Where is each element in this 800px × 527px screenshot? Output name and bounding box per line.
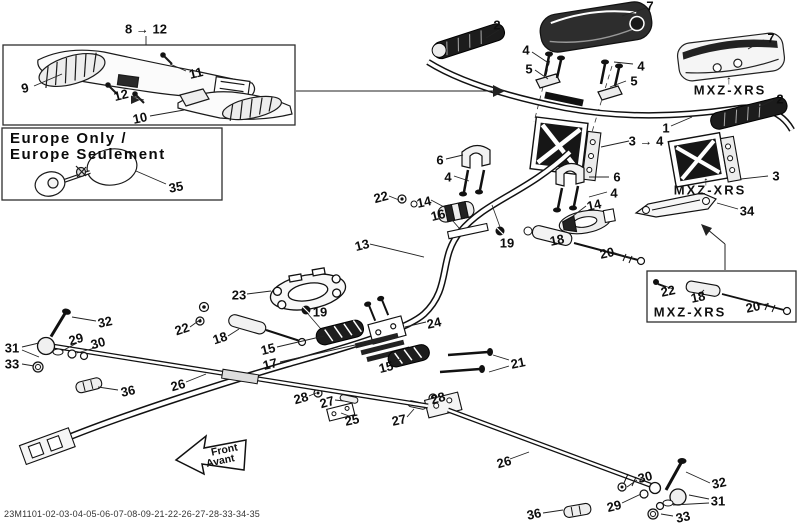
part-callout-10: 10 <box>132 110 149 126</box>
part-callout-34: 34 <box>740 205 754 218</box>
part-callout-22: 22 <box>660 283 677 299</box>
part-callout-6: 6 <box>613 171 620 184</box>
part-callout-34: 3 → 4 <box>629 135 664 148</box>
part-callout-26: 26 <box>495 454 512 470</box>
part-callout-12: 12 <box>112 87 129 103</box>
part-callout-812: 8 → 12 <box>125 23 167 36</box>
handlebar-drawing <box>428 0 792 213</box>
front-direction-arrow: Front Avant <box>176 436 246 474</box>
part-callout-29: 29 <box>605 498 622 514</box>
mxz-xrs-label-inset: MXZ-XRS <box>654 306 727 319</box>
part-callout-4: 4 <box>522 44 529 57</box>
part-callout-31: 31 <box>711 495 725 508</box>
exploded-diagram-art: Front Avant <box>0 0 800 527</box>
part-callout-5: 5 <box>525 63 532 76</box>
part-callout-18: 18 <box>549 232 566 248</box>
part-callout-20: 20 <box>745 299 762 315</box>
part-callout-14: 14 <box>586 197 603 213</box>
steering-column-drawing <box>19 152 725 519</box>
part-callout-28: 28 <box>429 390 446 406</box>
part-callout-14: 14 <box>416 194 433 210</box>
part-callout-33: 33 <box>675 509 692 525</box>
part-callout-6: 6 <box>436 154 443 167</box>
part-callout-15: 15 <box>377 359 394 375</box>
part-callout-17: 17 <box>261 356 278 372</box>
part-callout-23: 23 <box>232 289 246 302</box>
part-callout-36: 36 <box>526 506 543 522</box>
part-callout-25: 25 <box>344 412 361 428</box>
part-callout-32: 32 <box>711 475 728 491</box>
part-callout-19: 19 <box>313 306 327 319</box>
part-callout-20: 20 <box>599 245 616 261</box>
part-callout-27: 27 <box>318 394 335 410</box>
part-callout-30: 30 <box>636 469 653 485</box>
part-callout-4: 4 <box>444 171 451 184</box>
part-callout-24: 24 <box>426 315 443 331</box>
europe-only-title: Europe Only / Europe Seulement <box>10 131 166 163</box>
part-callout-2: 2 <box>776 93 783 106</box>
part-callout-32: 32 <box>97 314 114 330</box>
part-callout-26: 26 <box>169 377 186 393</box>
part-callout-35: 35 <box>168 179 185 194</box>
part-callout-16: 16 <box>429 207 446 223</box>
part-callout-27: 27 <box>391 412 408 428</box>
europe-only-line1: Europe Only / <box>10 131 166 147</box>
part-callout-31: 31 <box>5 342 19 355</box>
catalog-part-code: 23M1101-02-03-04-05-06-07-08-09-21-22-26… <box>4 510 260 519</box>
europe-only-line2: Europe Seulement <box>10 147 166 163</box>
part-callout-29: 29 <box>67 331 84 347</box>
part-callout-11: 11 <box>188 65 204 81</box>
part-callout-5: 5 <box>630 75 637 88</box>
part-callout-19: 19 <box>500 237 514 250</box>
part-callout-30: 30 <box>89 335 106 351</box>
part-callout-36: 36 <box>120 383 137 399</box>
mxz-xrs-label-pad: MXZ-XRS <box>694 84 767 97</box>
parts-diagram-page: Front Avant 8 → 129111210352745457↑213 →… <box>0 0 800 527</box>
handguard-drawing <box>35 47 292 124</box>
part-callout-2: 2 <box>493 19 500 32</box>
part-callout-13: 13 <box>353 237 370 253</box>
part-callout-4: 4 <box>610 187 617 200</box>
part-callout-7: 7 <box>767 32 774 45</box>
part-callout-7: 7 <box>646 0 653 13</box>
part-callout-33: 33 <box>5 358 19 371</box>
mxz-xrs-label-riser: MXZ-XRS <box>674 184 747 197</box>
part-callout-18: 18 <box>690 289 707 305</box>
part-callout-28: 28 <box>292 390 309 406</box>
part-callout-4: 4 <box>637 60 644 73</box>
part-callout-3: 3 <box>772 170 779 183</box>
part-callout-21: 21 <box>510 355 527 371</box>
part-callout-22: 22 <box>372 189 389 205</box>
